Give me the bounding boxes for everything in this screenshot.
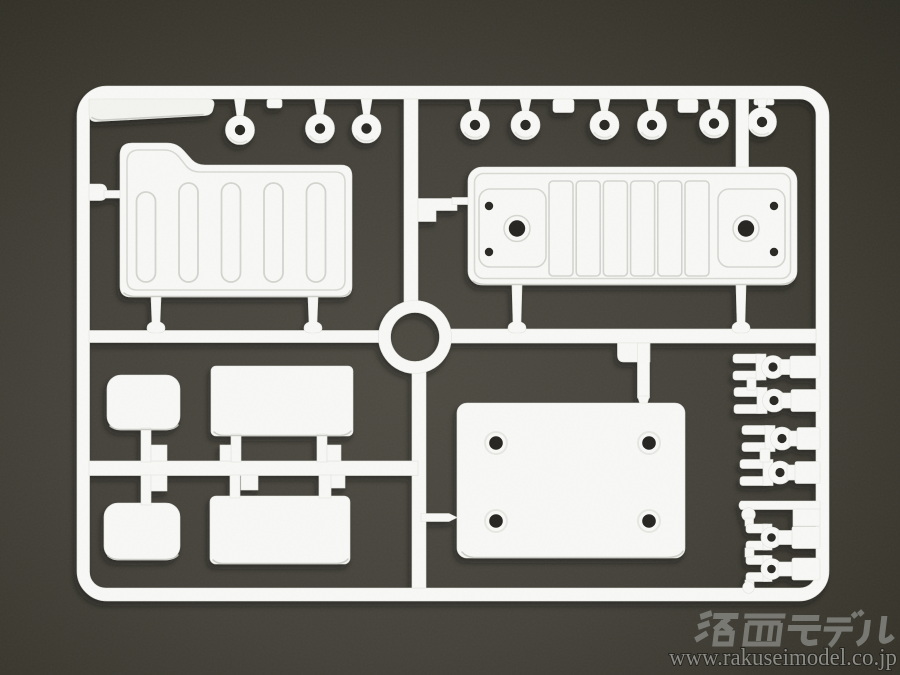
svg-text:www.rakuseimodel.co.jp: www.rakuseimodel.co.jp	[669, 645, 897, 671]
